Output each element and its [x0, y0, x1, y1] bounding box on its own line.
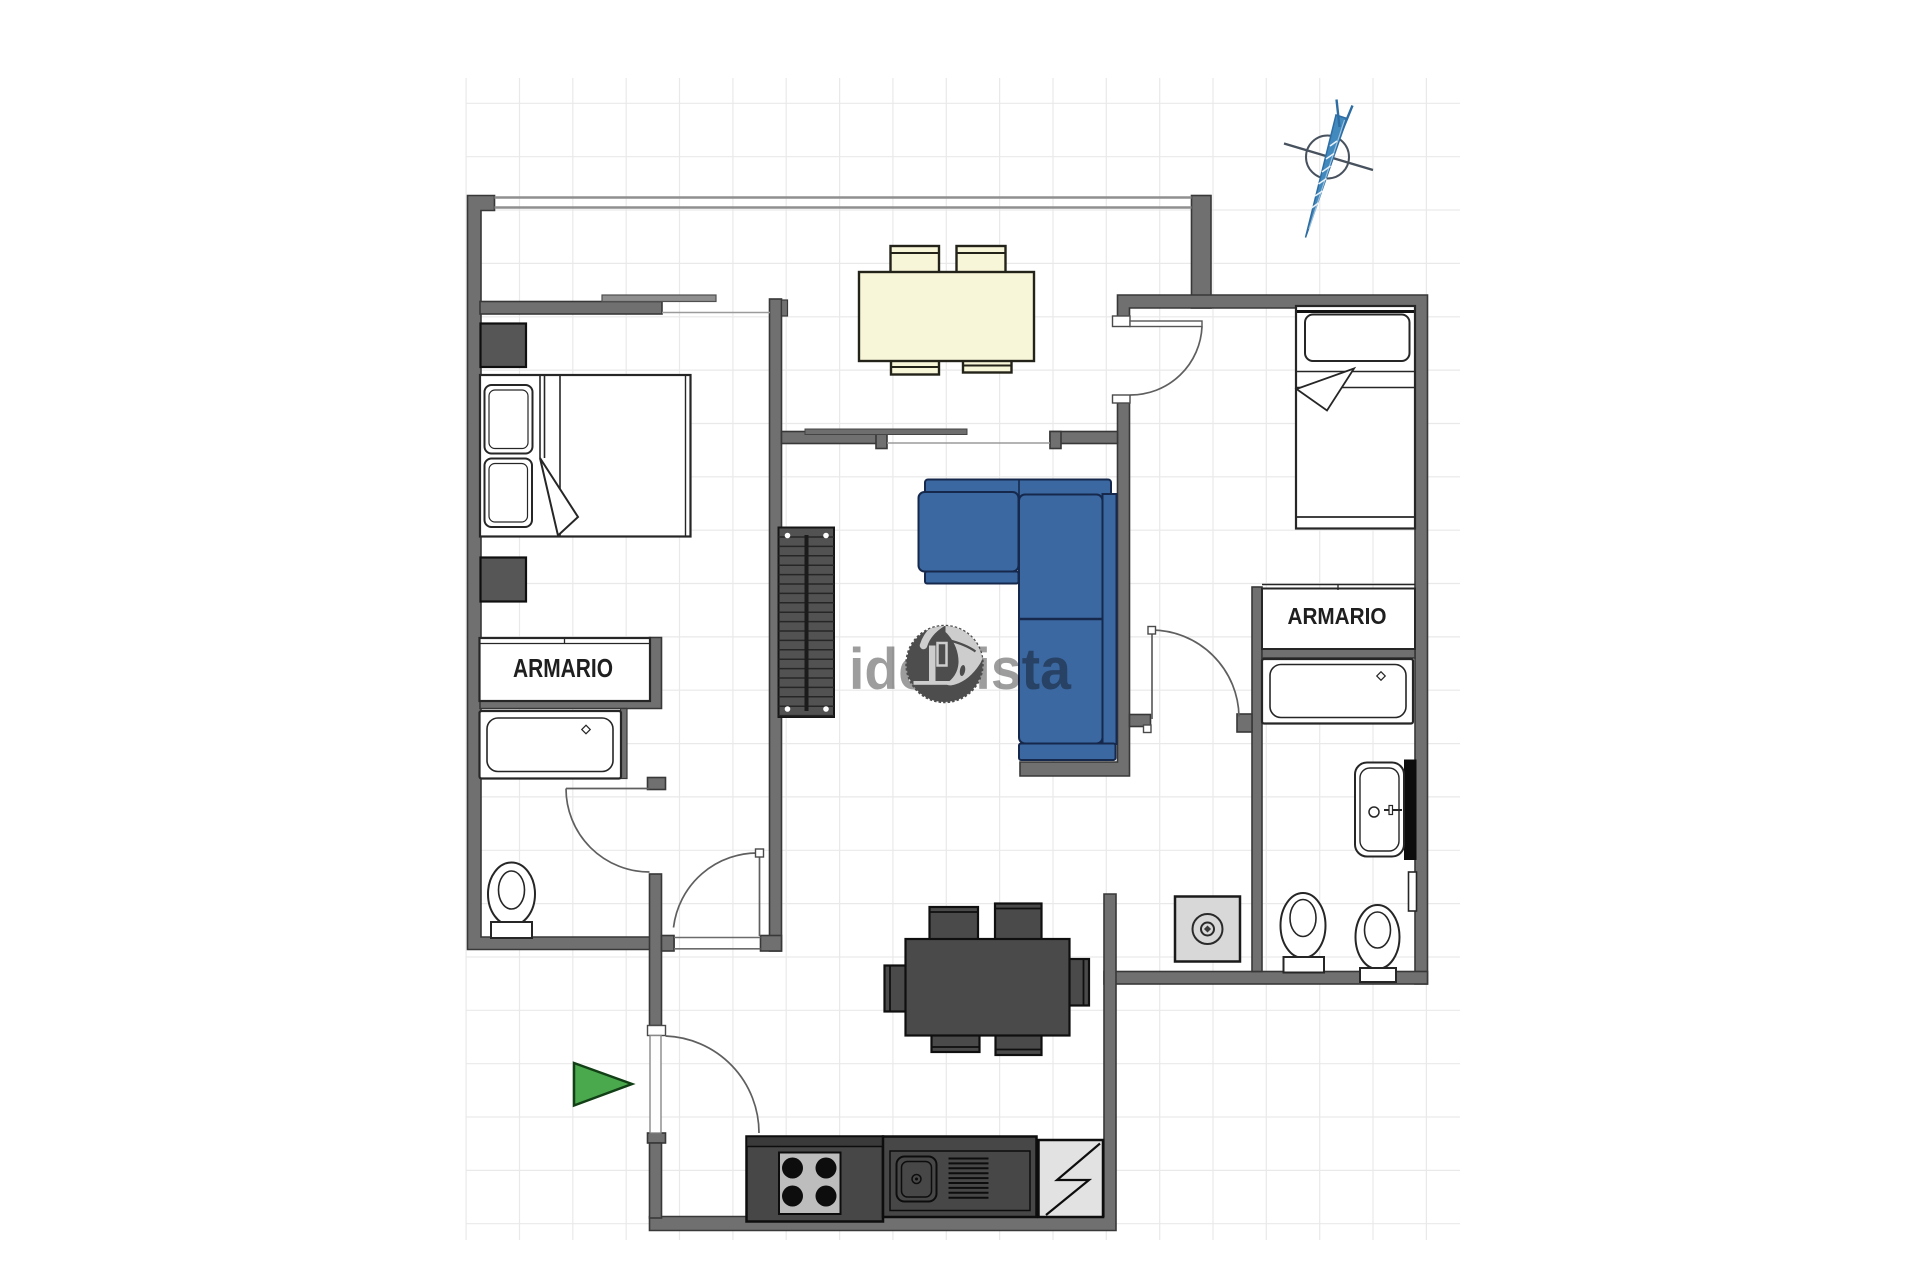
svg-text:ARMARIO: ARMARIO — [1288, 603, 1387, 629]
svg-text:ARMARIO: ARMARIO — [513, 655, 613, 683]
